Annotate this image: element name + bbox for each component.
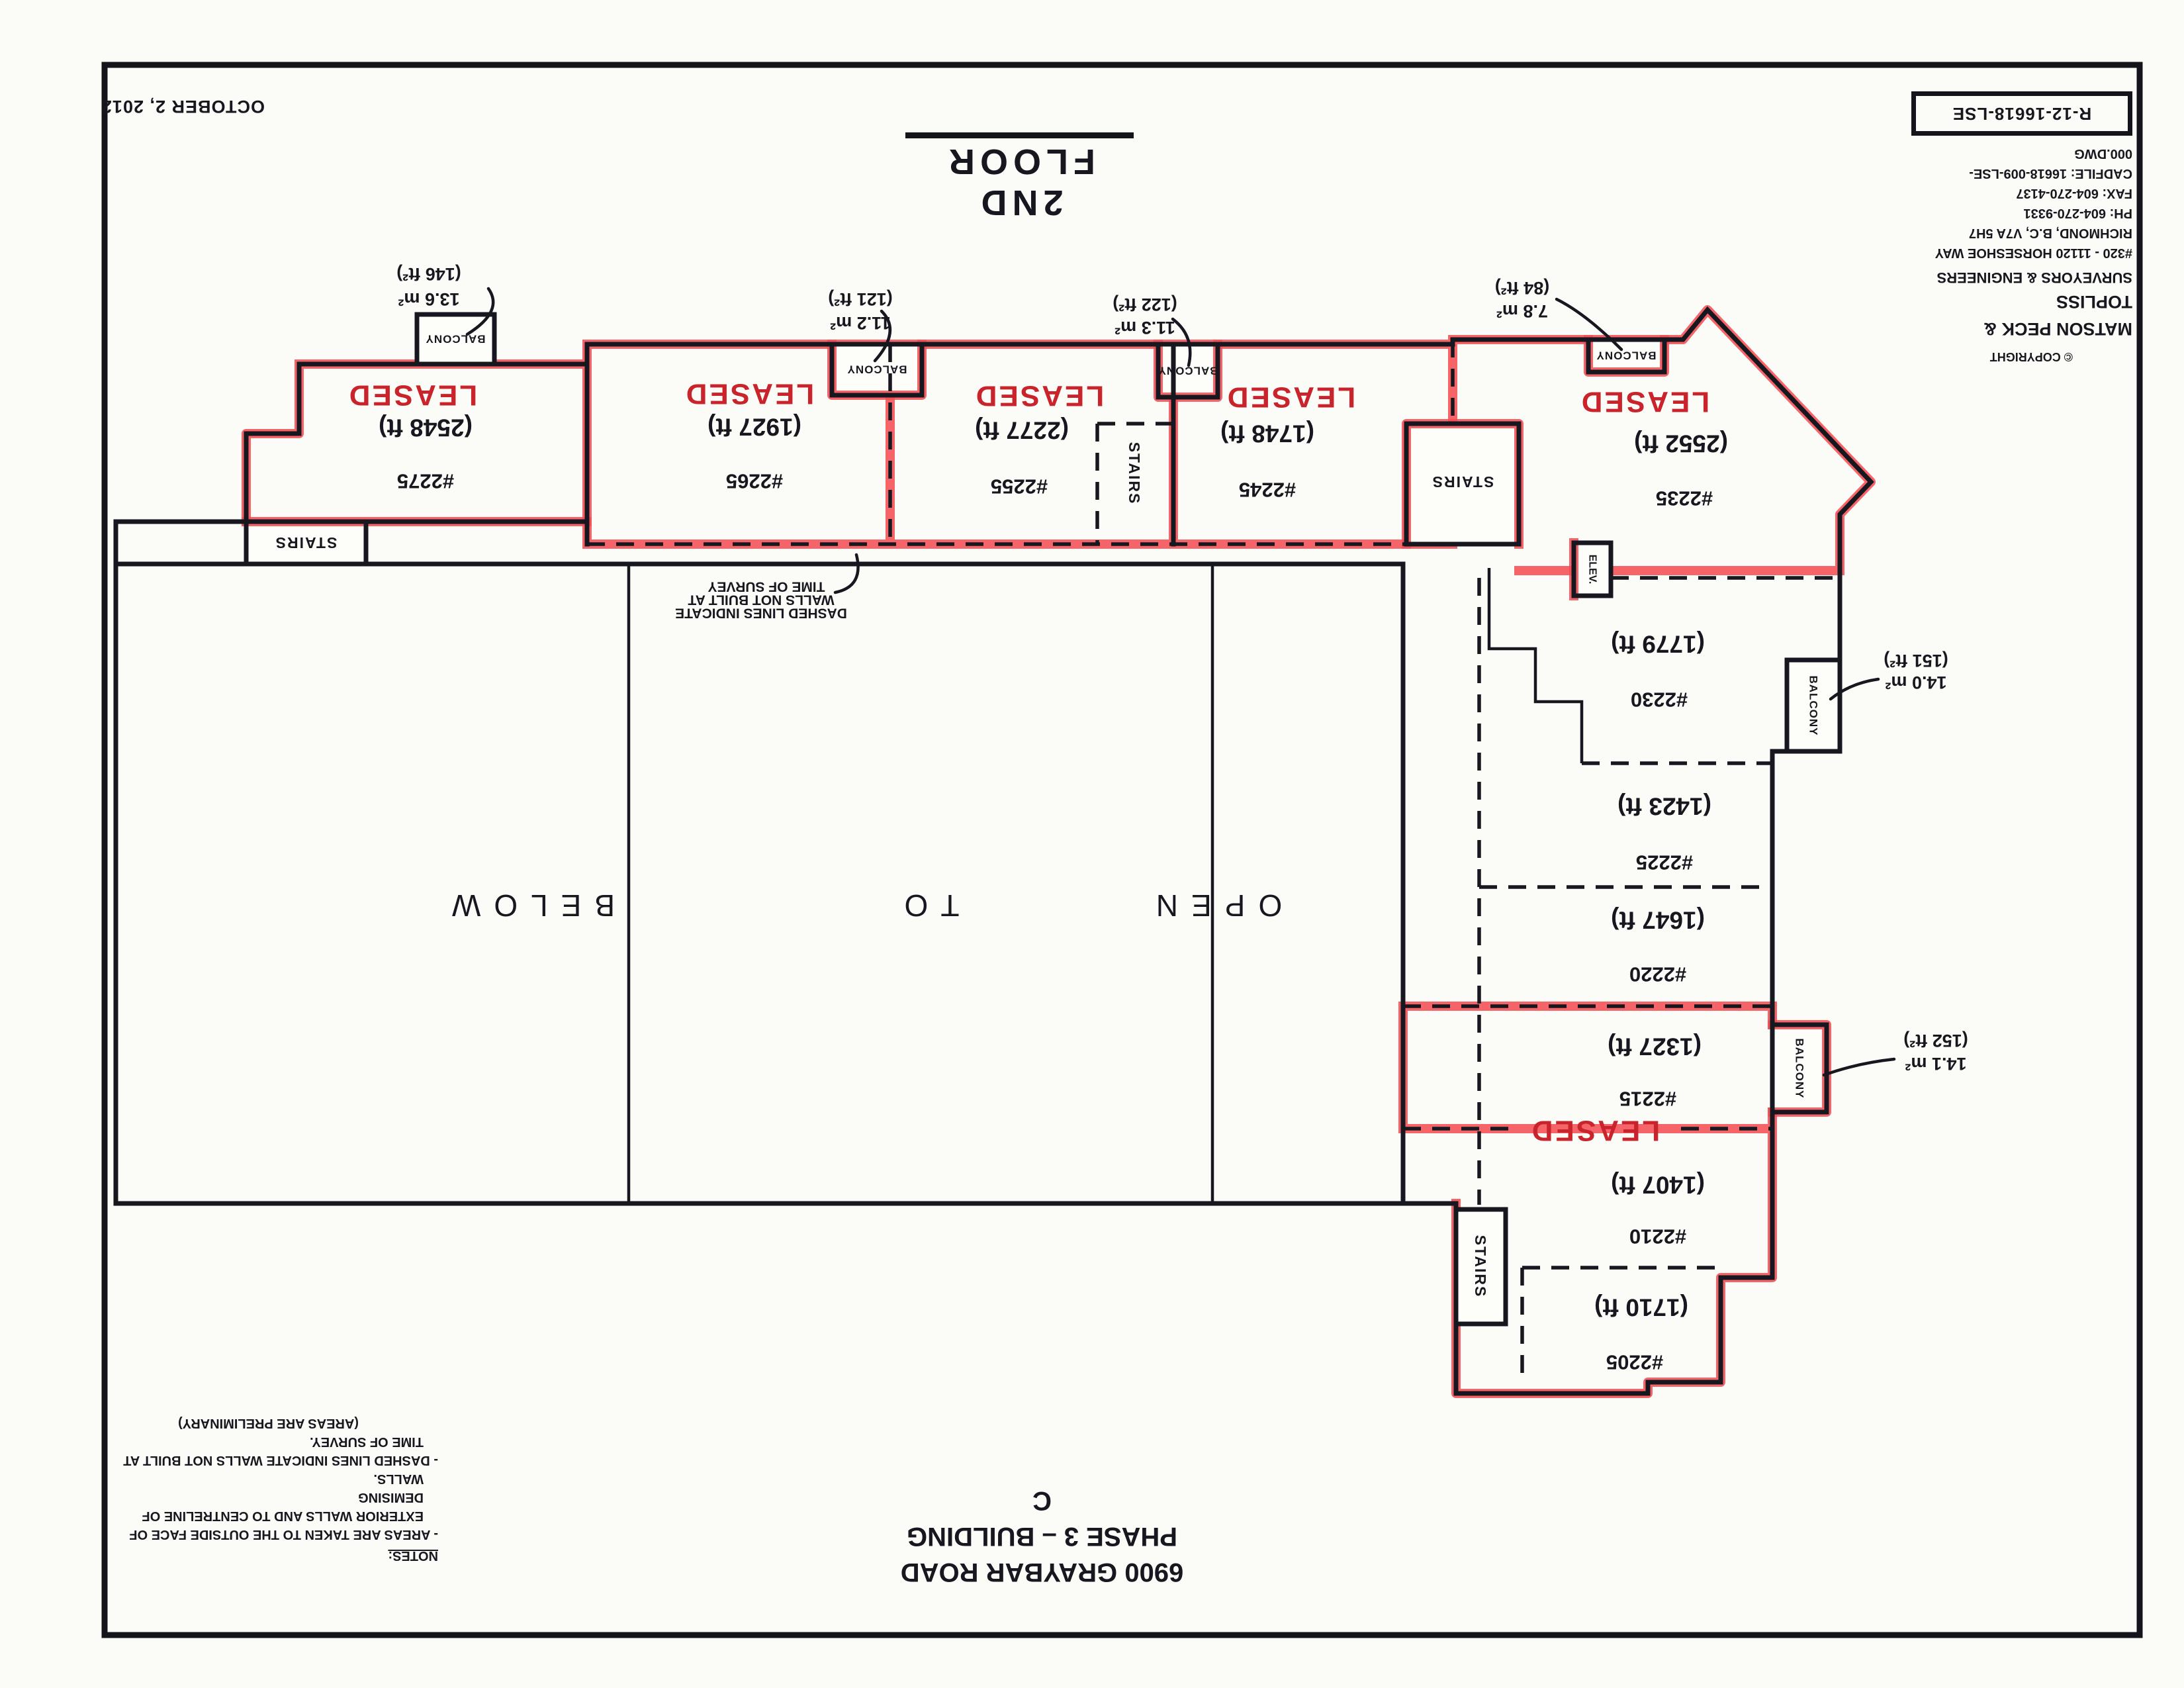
unit-2275-leased: LEASED [347,379,477,412]
unit-2210-area: (1407 ft) [1611,1172,1705,1199]
unit-2255-leased: LEASED [974,380,1104,412]
unit-2245-area: (1748 ft) [1220,420,1314,447]
stairs-label-south: STAIRS [1472,1235,1489,1298]
copyright-line: © COPYRIGHT [1911,348,2073,365]
notes-block: NOTES: - AREAS ARE TAKEN TO THE OUTSIDE … [120,1414,438,1565]
room-box-fills [246,314,1840,1324]
balcony-label-2275: BALCONY [425,333,485,346]
unit-2220-number: #2220 [1629,963,1686,986]
unit-2245-number: #2245 [1239,479,1296,502]
unit-2255-number: #2255 [991,475,1048,498]
project-address-line2: PHASE 3 – BUILDING C [895,1483,1189,1554]
unit-2220-area: (1647 ft) [1611,907,1705,934]
leader-balcony-2215 [1824,1059,1894,1075]
balcony-label-2235: BALCONY [1596,350,1656,362]
company-fax: FAX: 604-270-4137 [1911,183,2132,203]
surveyor-title-block: © COPYRIGHT MATSON PECK & TOPLISS SURVEY… [1911,91,2132,365]
unit-2245-leased: LEASED [1226,381,1355,414]
scanned-floor-plan-sheet: LEASED (2548 ft) #2275 LEASED (1927 ft) … [0,0,2184,1688]
unit-2275-number: #2275 [397,470,454,493]
unit-2225-area: (1423 ft) [1617,793,1711,820]
sheet-title: 2ND FLOOR [905,132,1134,223]
company-subtitle: SURVEYORS & ENGINEERS [1911,267,2132,289]
leased-highlight-outline [246,310,1871,1393]
unit-2215-area: (1327 ft) [1608,1033,1702,1060]
notes-line3: WALLS. [120,1470,438,1488]
unit-2235-area: (2552 ft) [1634,430,1728,457]
notes-line6: (AREAS ARE PRELIMINARY) [120,1414,438,1432]
notes-line1: - AREAS ARE TAKEN TO THE OUTSIDE FACE OF [120,1525,438,1544]
to-word: TO [891,888,959,923]
balcony-area-2275-ft2: (146 ft²) [396,264,461,284]
unit-2275-area: (2548 ft) [379,414,473,442]
unit-2215-number: #2215 [1619,1088,1676,1111]
stairs-label-middle: STAIRS [1432,473,1494,491]
leased-highlight-details [246,340,1827,1112]
balcony-label-2230: BALCONY [1807,675,1820,735]
notes-line4: - DASHED LINES INDICATE WALLS NOT BUILT … [120,1451,438,1470]
unit-2230-number: #2230 [1631,688,1688,712]
company-phone: PH: 604-270-9331 [1911,203,2132,223]
room-box-outlines [246,314,1840,1324]
sheet-date: OCTOBER 2, 2012 [99,96,265,117]
unit-2205-number: #2205 [1606,1351,1663,1374]
unit-2235-number: #2235 [1656,487,1713,510]
project-address-line1: 6900 GRAYBAR ROAD [895,1554,1189,1590]
balcony-area-2245-ft2: (122 ft²) [1113,295,1177,314]
unit-2230-area: (1779 ft) [1611,631,1705,658]
unit-2255-area: (2277 ft) [975,417,1069,444]
cadfile-line: CADFILE: 16618-009-LSE-000.DWG [1911,144,2132,183]
balcony-area-2265-ft2: (121 ft²) [828,289,893,309]
interior-division-lines [629,564,1582,1203]
unit-2210-number: #2210 [1629,1225,1686,1248]
elevator-label: ELEV. [1587,555,1598,585]
notes-line2: EXTERIOR WALLS AND TO CENTRELINE OF DEMI… [120,1488,438,1525]
stairs-label-west: STAIRS [275,534,338,551]
unit-2225-number: #2225 [1636,851,1693,874]
unit-2215-leased: LEASED [1530,1115,1660,1147]
balcony-label-2215: BALCONY [1794,1038,1806,1098]
building-walls [116,310,1871,1393]
unit-2265-number: #2265 [726,470,783,493]
balcony-label-2245: BALCONY [1158,365,1218,377]
unit-2265-area: (1927 ft) [707,414,801,441]
unit-2235-leased: LEASED [1580,386,1709,418]
balcony-area-2245-m2: 11.3 m² [1115,318,1175,338]
notes-heading: NOTES: [120,1546,438,1565]
balcony-area-2235-ft2: (84 ft²) [1495,278,1550,298]
company-address1: #320 - 11120 HORSESHOE WAY [1911,243,2132,263]
unit-2205-area: (1710 ft) [1594,1294,1688,1321]
company-name: MATSON PECK & TOPLISS [1911,289,2132,342]
balcony-area-2275-m2: 13.6 m² [398,289,459,309]
balcony-area-2230-m2: 14.0 m² [1885,673,1946,692]
unit-2265-leased: LEASED [684,378,814,410]
project-address-block: 6900 GRAYBAR ROAD PHASE 3 – BUILDING C [895,1483,1189,1590]
balcony-area-2235-m2: 7.8 m² [1496,301,1548,321]
balcony-label-2265: BALCONY [846,363,907,376]
leader-survey-note [835,555,858,592]
open-word: OPEN [1143,888,1282,923]
notes-line5: TIME OF SURVEY. [120,1432,438,1451]
balcony-area-2265-m2: 11.2 m² [830,313,891,333]
balcony-area-2215-m2: 14.1 m² [1905,1054,1966,1074]
balcony-area-2215-ft2: (152 ft²) [1903,1031,1968,1051]
drawing-number: R-12-16618-LSE [1911,91,2132,136]
survey-note-line3: TIME OF SURVEY [708,579,825,594]
below-word: BELOW [439,888,615,923]
company-address2: RICHMOND, B.C, V7A 5H7 [1911,223,2132,243]
open-area-labels: OPEN TO BELOW DASHED LINES INDICATE WALL… [439,579,1282,923]
balcony-area-2230-ft2: (151 ft²) [1884,651,1948,671]
stairs-label-strip: STAIRS [1126,442,1143,505]
